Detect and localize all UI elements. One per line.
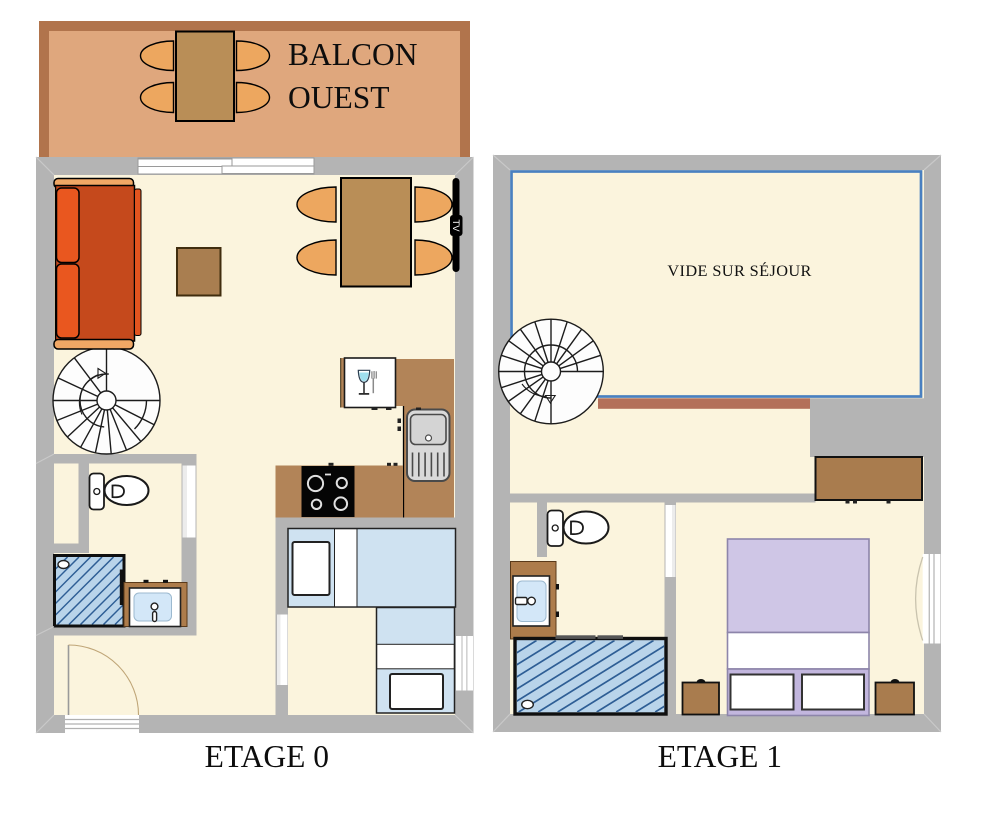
svg-text:VIDE SUR SÉJOUR: VIDE SUR SÉJOUR	[667, 261, 811, 280]
svg-text:ETAGE 1: ETAGE 1	[658, 739, 782, 774]
svg-text:OUEST: OUEST	[288, 80, 390, 115]
svg-text:TV: TV	[450, 219, 461, 232]
svg-text:BALCON: BALCON	[288, 37, 418, 72]
svg-text:ETAGE 0: ETAGE 0	[205, 739, 329, 774]
